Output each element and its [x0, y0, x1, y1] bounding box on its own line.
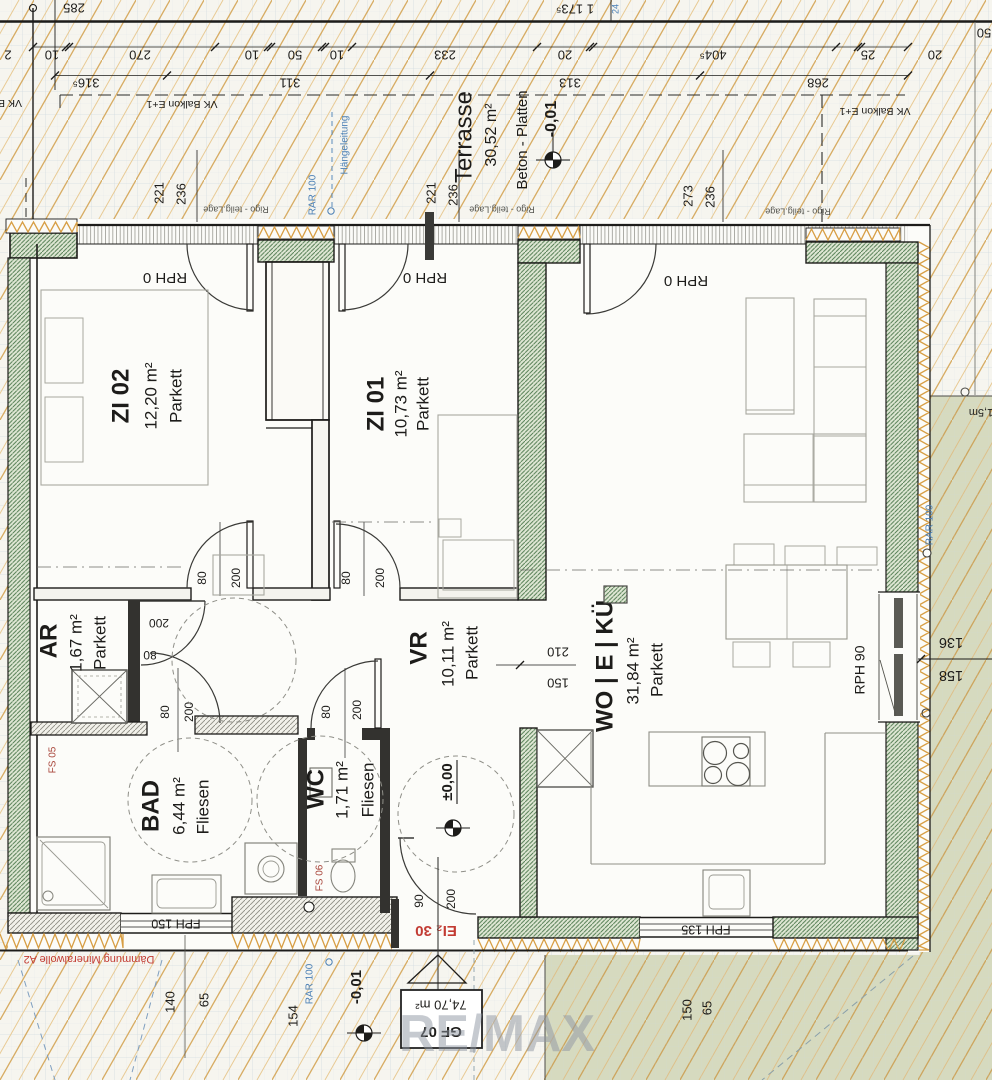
svg-text:Parkett: Parkett — [166, 369, 185, 423]
svg-text:80: 80 — [195, 571, 209, 585]
svg-text:80: 80 — [143, 648, 157, 662]
svg-text:RAR 100: RAR 100 — [925, 504, 936, 545]
svg-text:EI₂ 30: EI₂ 30 — [415, 922, 457, 939]
svg-text:VK Balkon E+1: VK Balkon E+1 — [146, 98, 217, 110]
svg-text:200: 200 — [229, 568, 243, 588]
svg-text:RAR 100: RAR 100 — [305, 963, 316, 1004]
svg-text:65: 65 — [699, 1001, 714, 1015]
svg-text:236: 236 — [173, 183, 188, 205]
svg-text:200: 200 — [350, 700, 364, 720]
svg-text:Rigo - teilg.Lage: Rigo - teilg.Lage — [203, 205, 269, 215]
svg-text:BAD: BAD — [137, 780, 164, 832]
svg-text:RE/MAX: RE/MAX — [399, 1005, 595, 1063]
svg-text:221: 221 — [151, 182, 166, 204]
svg-text:316⁵: 316⁵ — [72, 76, 99, 91]
svg-text:1,71 m²: 1,71 m² — [332, 761, 351, 819]
svg-text:90: 90 — [412, 894, 426, 908]
svg-text:200: 200 — [444, 889, 458, 909]
svg-text:±0,00: ±0,00 — [439, 763, 456, 800]
svg-text:RPH 90: RPH 90 — [852, 645, 868, 694]
svg-text:10: 10 — [330, 48, 344, 63]
svg-text:Parkett: Parkett — [413, 377, 432, 431]
svg-text:65: 65 — [196, 993, 211, 1007]
svg-text:WC: WC — [302, 769, 329, 809]
svg-text:31,84 m²: 31,84 m² — [623, 637, 642, 704]
svg-text:24: 24 — [610, 4, 620, 14]
svg-text:150: 150 — [679, 999, 694, 1021]
svg-text:12,20 m²: 12,20 m² — [141, 362, 160, 429]
svg-text:270: 270 — [129, 48, 151, 63]
svg-text:FS 05: FS 05 — [48, 746, 59, 773]
svg-text:VK B: VK B — [0, 97, 22, 109]
svg-text:50: 50 — [288, 48, 302, 63]
svg-text:RPH 0: RPH 0 — [403, 269, 447, 286]
svg-text:154: 154 — [285, 1005, 300, 1027]
svg-text:80: 80 — [158, 705, 172, 719]
svg-text:200: 200 — [373, 568, 387, 588]
svg-text:158: 158 — [939, 667, 963, 683]
svg-text:20: 20 — [558, 48, 572, 63]
svg-text:10,11 m²: 10,11 m² — [438, 621, 457, 687]
svg-text:285: 285 — [63, 1, 85, 16]
svg-text:AR: AR — [35, 624, 62, 659]
svg-text:140: 140 — [162, 991, 177, 1013]
svg-text:150: 150 — [547, 676, 569, 691]
svg-text:221: 221 — [423, 182, 438, 204]
svg-text:RAR 100: RAR 100 — [308, 174, 319, 215]
svg-text:FPH 135: FPH 135 — [681, 923, 730, 937]
svg-text:20: 20 — [928, 48, 942, 63]
svg-text:VK Balkon E+1: VK Balkon E+1 — [839, 105, 910, 117]
svg-text:236: 236 — [702, 186, 717, 208]
svg-text:VR: VR — [405, 631, 432, 664]
svg-text:233: 233 — [434, 48, 456, 63]
svg-text:Fliesen: Fliesen — [193, 780, 212, 835]
svg-text:ZI 02: ZI 02 — [107, 369, 134, 424]
svg-text:50: 50 — [977, 26, 991, 41]
svg-text:1,67 m²: 1,67 m² — [66, 614, 85, 672]
svg-text:136: 136 — [939, 634, 963, 650]
svg-text:Fliesen: Fliesen — [358, 763, 377, 818]
svg-text:FPH 150: FPH 150 — [151, 917, 200, 931]
svg-text:Dämmung Mineralwolle A2: Dämmung Mineralwolle A2 — [24, 953, 155, 965]
svg-text:311: 311 — [280, 76, 301, 91]
svg-text:Parkett: Parkett — [90, 616, 109, 670]
svg-text:10: 10 — [245, 48, 259, 63]
svg-text:Rigo - teilg.Lage: Rigo - teilg.Lage — [765, 207, 831, 217]
svg-text:30,52 m²: 30,52 m² — [483, 103, 500, 167]
svg-text:210: 210 — [547, 645, 569, 660]
svg-text:Rigo - teilg.Lage: Rigo - teilg.Lage — [469, 205, 535, 215]
svg-text:200: 200 — [182, 702, 196, 722]
svg-text:Parkett: Parkett — [647, 643, 666, 697]
svg-text:1,5m: 1,5m — [969, 406, 992, 418]
svg-text:ZI 01: ZI 01 — [362, 377, 389, 432]
svg-text:RPH 0: RPH 0 — [143, 269, 187, 286]
svg-text:200: 200 — [149, 616, 169, 630]
svg-text:268: 268 — [807, 76, 829, 91]
svg-text:80: 80 — [339, 571, 353, 585]
svg-text:313: 313 — [559, 76, 581, 91]
svg-text:Hängeleitung: Hängeleitung — [340, 116, 351, 175]
svg-text:2: 2 — [4, 48, 11, 63]
svg-text:404⁵: 404⁵ — [699, 48, 726, 63]
svg-text:25: 25 — [861, 48, 875, 63]
svg-text:FS 06: FS 06 — [315, 864, 326, 891]
svg-text:Beton - Platten: Beton - Platten — [514, 90, 531, 189]
svg-text:Parkett: Parkett — [462, 626, 481, 680]
svg-text:RPH 0: RPH 0 — [664, 272, 708, 289]
svg-text:-0,01: -0,01 — [348, 970, 365, 1004]
svg-text:10: 10 — [45, 48, 59, 63]
svg-text:Terrasse: Terrasse — [450, 91, 477, 183]
svg-text:80: 80 — [319, 705, 333, 719]
svg-text:6,44 m²: 6,44 m² — [169, 777, 188, 835]
svg-text:1 173⁵: 1 173⁵ — [556, 2, 594, 17]
svg-text:273: 273 — [680, 185, 695, 207]
svg-text:10,73 m²: 10,73 m² — [391, 370, 410, 437]
svg-text:236: 236 — [445, 184, 460, 206]
svg-text:-0,01: -0,01 — [543, 101, 560, 138]
svg-text:WO | E | KÜ: WO | E | KÜ — [591, 600, 618, 732]
